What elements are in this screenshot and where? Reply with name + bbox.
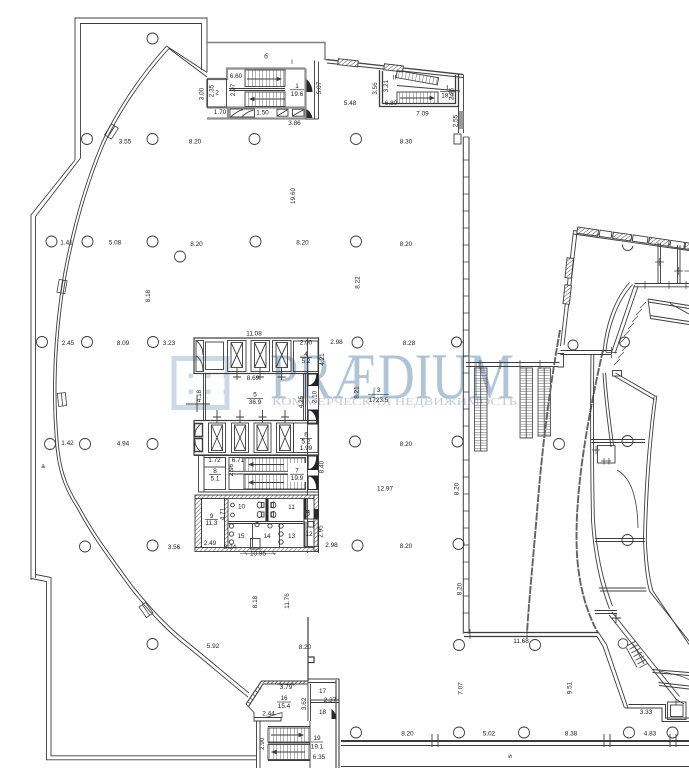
svg-text:и: и — [508, 753, 512, 760]
svg-text:8.20: 8.20 — [190, 241, 203, 248]
svg-text:6.71: 6.71 — [232, 457, 245, 464]
svg-text:6.80: 6.80 — [385, 100, 398, 107]
svg-text:36.9: 36.9 — [249, 399, 262, 406]
svg-text:8.20: 8.20 — [299, 644, 312, 651]
svg-text:15.4: 15.4 — [278, 703, 291, 710]
svg-text:5.07: 5.07 — [316, 81, 323, 94]
svg-text:8.20: 8.20 — [400, 241, 413, 248]
svg-text:16: 16 — [280, 695, 288, 702]
svg-text:1.72: 1.72 — [208, 457, 221, 464]
svg-text:1: 1 — [295, 83, 299, 90]
svg-text:3: 3 — [377, 387, 381, 394]
svg-text:2.10: 2.10 — [311, 390, 318, 403]
svg-text:3.56: 3.56 — [168, 544, 181, 551]
svg-text:2: 2 — [215, 90, 219, 97]
svg-text:4.71: 4.71 — [220, 507, 227, 520]
svg-text:2.00: 2.00 — [300, 340, 313, 347]
svg-text:3.00: 3.00 — [199, 87, 206, 100]
svg-text:2.44: 2.44 — [262, 711, 275, 718]
svg-text:5.92: 5.92 — [207, 643, 220, 650]
svg-text:10: 10 — [238, 504, 246, 511]
svg-text:8.38: 8.38 — [565, 731, 578, 738]
svg-text:II: II — [393, 75, 397, 82]
svg-text:8.20: 8.20 — [296, 240, 309, 247]
svg-text:4: 4 — [304, 351, 308, 358]
svg-text:11.68: 11.68 — [513, 638, 529, 645]
svg-text:2.98: 2.98 — [325, 542, 338, 549]
svg-text:12.97: 12.97 — [377, 486, 393, 493]
svg-text:I: I — [291, 59, 293, 66]
svg-text:19.9: 19.9 — [291, 475, 304, 482]
svg-text:2.45: 2.45 — [62, 340, 75, 347]
svg-text:19.1: 19.1 — [311, 744, 324, 751]
svg-text:3.79: 3.79 — [280, 684, 293, 691]
svg-text:11.3: 11.3 — [206, 520, 218, 527]
svg-text:11.08: 11.08 — [246, 331, 262, 338]
svg-text:8.20: 8.20 — [400, 543, 413, 550]
svg-text:10.95: 10.95 — [250, 551, 266, 558]
svg-text:2.98: 2.98 — [330, 339, 343, 346]
svg-text:5: 5 — [253, 392, 257, 399]
svg-text:8.18: 8.18 — [145, 289, 152, 302]
svg-text:1.70: 1.70 — [214, 109, 227, 116]
svg-text:8.20: 8.20 — [401, 731, 414, 738]
svg-text:1.50: 1.50 — [256, 110, 269, 117]
svg-text:8.22: 8.22 — [355, 276, 362, 289]
svg-text:5.1: 5.1 — [211, 476, 220, 483]
svg-text:2.55: 2.55 — [452, 114, 459, 127]
svg-text:8: 8 — [213, 468, 217, 475]
svg-text:17: 17 — [319, 688, 327, 695]
svg-text:б: б — [264, 53, 268, 61]
svg-text:11.76: 11.76 — [284, 593, 291, 609]
svg-text:7.07: 7.07 — [457, 682, 464, 695]
svg-text:1.42: 1.42 — [61, 440, 74, 447]
svg-text:8.20: 8.20 — [189, 139, 202, 146]
svg-text:4.94: 4.94 — [117, 441, 130, 448]
svg-text:3.56: 3.56 — [372, 82, 379, 95]
svg-text:9: 9 — [210, 513, 214, 520]
svg-text:3.33: 3.33 — [640, 709, 653, 716]
svg-text:8.18: 8.18 — [252, 595, 259, 608]
svg-text:7.09: 7.09 — [416, 111, 429, 118]
svg-text:6: 6 — [304, 432, 308, 439]
svg-text:8.20: 8.20 — [400, 441, 413, 448]
svg-text:2.49: 2.49 — [204, 540, 217, 547]
svg-text:4.25: 4.25 — [298, 395, 305, 408]
svg-text:4.83: 4.83 — [644, 731, 657, 738]
svg-text:3.55: 3.55 — [119, 139, 132, 146]
svg-text:19: 19 — [313, 735, 321, 742]
svg-text:1.99: 1.99 — [300, 445, 313, 452]
svg-text:4.21: 4.21 — [319, 353, 326, 366]
svg-text:5.08: 5.08 — [109, 240, 122, 247]
svg-text:8.09: 8.09 — [117, 340, 130, 347]
svg-text:8.21: 8.21 — [353, 386, 360, 399]
svg-text:3.23: 3.23 — [163, 340, 176, 347]
svg-text:3.24: 3.24 — [224, 544, 237, 551]
svg-text:14: 14 — [263, 533, 271, 540]
svg-text:5.2: 5.2 — [302, 358, 311, 365]
svg-text:2.95: 2.95 — [318, 525, 325, 538]
svg-text:13: 13 — [288, 533, 296, 540]
svg-text:2.37: 2.37 — [324, 697, 337, 704]
svg-text:3.62: 3.62 — [301, 697, 308, 710]
svg-text:5.02: 5.02 — [483, 731, 496, 738]
svg-text:4.18: 4.18 — [196, 389, 203, 402]
svg-text:7: 7 — [295, 468, 299, 475]
svg-text:18: 18 — [319, 709, 327, 716]
svg-text:8.40: 8.40 — [319, 460, 326, 473]
svg-text:3.21: 3.21 — [383, 79, 390, 92]
svg-text:5.48: 5.48 — [344, 100, 357, 107]
svg-text:19.6: 19.6 — [291, 91, 304, 98]
svg-text:8.30: 8.30 — [400, 139, 413, 146]
svg-text:8.69: 8.69 — [247, 375, 260, 382]
svg-text:6.60: 6.60 — [230, 73, 243, 80]
svg-text:12: 12 — [305, 531, 313, 538]
svg-text:3.86: 3.86 — [288, 120, 301, 127]
svg-text:6.35: 6.35 — [313, 754, 326, 761]
svg-text:2.35: 2.35 — [449, 87, 456, 100]
svg-text:11: 11 — [288, 504, 295, 511]
svg-text:8.28: 8.28 — [403, 340, 416, 347]
svg-text:1723.5: 1723.5 — [369, 397, 389, 404]
svg-text:2.96: 2.96 — [228, 463, 235, 476]
svg-text:9.51: 9.51 — [566, 681, 573, 694]
svg-text:19.60: 19.60 — [290, 188, 297, 204]
svg-text:а: а — [41, 463, 45, 470]
svg-text:2.35: 2.35 — [208, 84, 215, 97]
svg-text:8.20: 8.20 — [456, 582, 463, 595]
svg-text:2.97: 2.97 — [230, 83, 237, 96]
svg-text:1.41: 1.41 — [60, 240, 73, 247]
svg-text:15: 15 — [237, 533, 245, 540]
svg-text:8.20: 8.20 — [453, 482, 460, 495]
svg-text:2.90: 2.90 — [259, 737, 266, 750]
